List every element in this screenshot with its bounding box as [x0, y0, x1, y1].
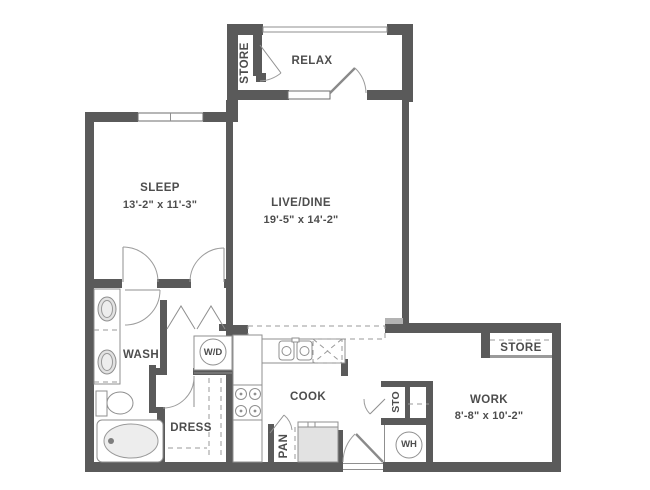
floor-plan-drawing	[0, 0, 650, 490]
live-dine-label: LIVE/DINE	[241, 196, 361, 210]
stove	[233, 385, 262, 420]
sleep-dimensions: 13'-2" x 11'-3"	[95, 198, 225, 212]
washer-dryer-label: W/D	[193, 346, 233, 360]
dress-label: DRESS	[156, 421, 226, 435]
refrigerator	[298, 422, 338, 462]
live-dine-dimensions: 19'-5" x 14'-2"	[236, 213, 366, 227]
sleep-label: SLEEP	[110, 181, 210, 195]
relax-label: RELAX	[282, 54, 342, 68]
relax-door	[330, 68, 355, 93]
sto-door	[370, 399, 385, 414]
pantry-label: PAN	[277, 418, 291, 474]
entry-door	[356, 434, 383, 462]
bathtub	[97, 420, 163, 462]
work-label: WORK	[439, 393, 539, 407]
water-heater-label: WH	[389, 438, 429, 452]
toilet	[96, 391, 133, 416]
floor-plan: RELAX STORE SLEEP 13'-2" x 11'-3" LIVE/D…	[0, 0, 650, 490]
store-work-label: STORE	[491, 341, 551, 355]
wash-label: WASH	[111, 348, 171, 362]
cook-label: COOK	[268, 390, 348, 404]
relax-window	[288, 91, 330, 99]
store-balcony-label: STORE	[238, 35, 252, 91]
work-dimensions: 8'-8" x 10'-2"	[429, 409, 549, 423]
store-balcony-door	[260, 45, 281, 73]
sto-label: STO	[389, 374, 403, 430]
laundry-bifold-doors	[167, 306, 225, 329]
bar-counter	[248, 326, 385, 339]
